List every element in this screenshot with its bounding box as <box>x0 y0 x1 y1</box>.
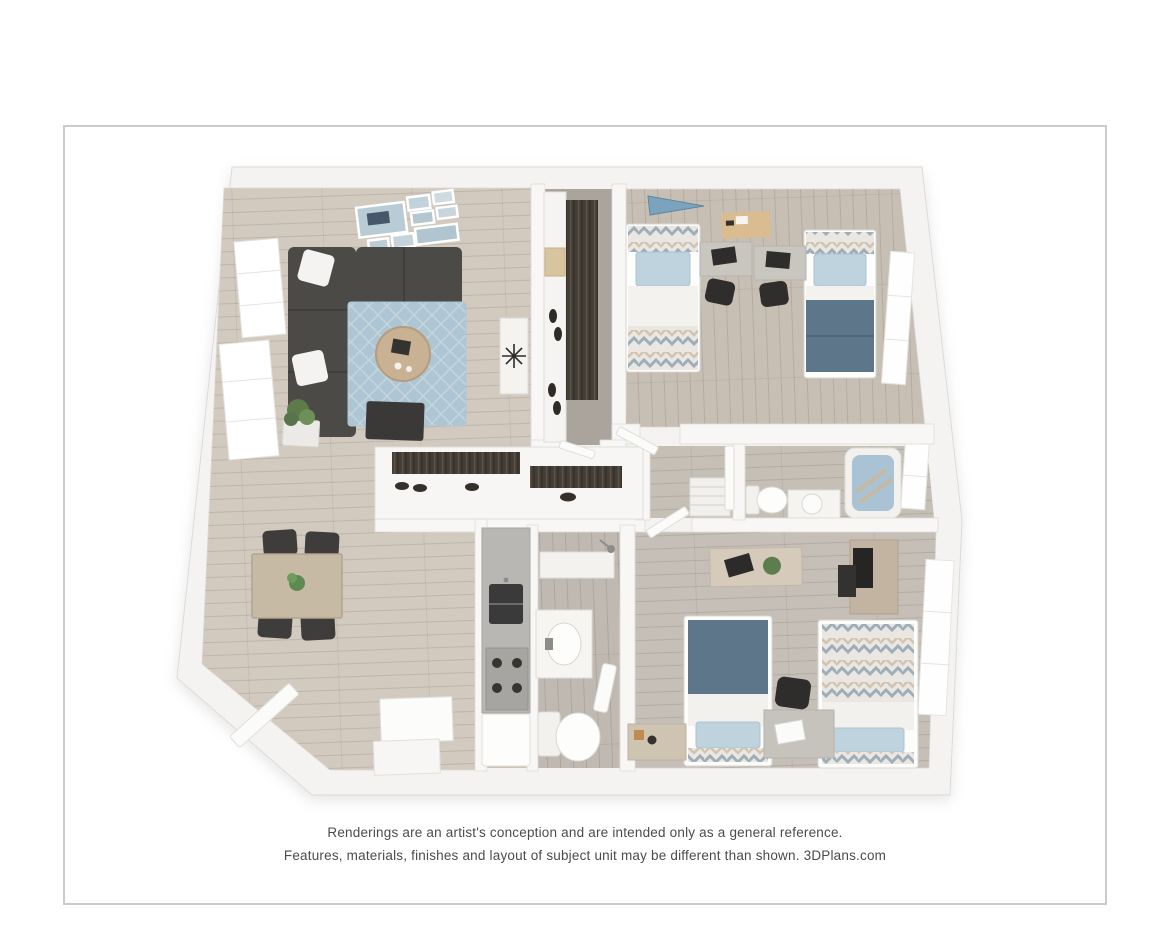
storage-box <box>545 248 565 276</box>
floor-plan-rendering <box>65 127 1105 903</box>
hallway-closets <box>375 447 643 519</box>
twin-bed <box>804 230 876 378</box>
vanity-sink <box>536 610 592 678</box>
office-chair <box>774 676 812 710</box>
refrigerator <box>482 714 530 766</box>
console-table <box>500 318 528 394</box>
desk-mat <box>722 211 771 239</box>
toilet <box>538 712 600 761</box>
stove <box>486 648 528 710</box>
twin-bed <box>626 224 700 372</box>
rendering-card: Renderings are an artist's conception an… <box>63 125 1107 905</box>
console-bench <box>710 547 803 587</box>
dining-table <box>252 554 342 618</box>
desk <box>754 246 806 280</box>
page: Renderings are an artist's conception an… <box>0 0 1170 931</box>
disclaimer: Renderings are an artist's conception an… <box>65 821 1105 867</box>
round-coffee-table <box>376 327 430 381</box>
kitchen-sink <box>489 578 523 625</box>
bathroom1-window <box>901 442 930 510</box>
living-window <box>234 238 286 337</box>
bathtub <box>845 448 901 518</box>
throw-pillow <box>291 349 329 387</box>
linen-shelf <box>690 478 730 516</box>
desk <box>700 242 752 276</box>
disclaimer-line2: Features, materials, finishes and layout… <box>65 844 1105 867</box>
bath-shelf <box>540 552 614 578</box>
bathroom1-door <box>725 446 734 510</box>
nightstand <box>628 724 686 760</box>
vanity-sink <box>788 490 840 518</box>
closet-clothes <box>392 452 520 474</box>
desk <box>764 710 834 758</box>
media-bench <box>365 401 424 441</box>
disclaimer-line1: Renderings are an artist's conception an… <box>65 821 1105 844</box>
hanging-clothes <box>566 200 598 400</box>
twin-bed <box>684 616 772 766</box>
toilet <box>746 486 787 514</box>
living-window <box>219 340 279 460</box>
closet-clothes <box>530 466 622 488</box>
